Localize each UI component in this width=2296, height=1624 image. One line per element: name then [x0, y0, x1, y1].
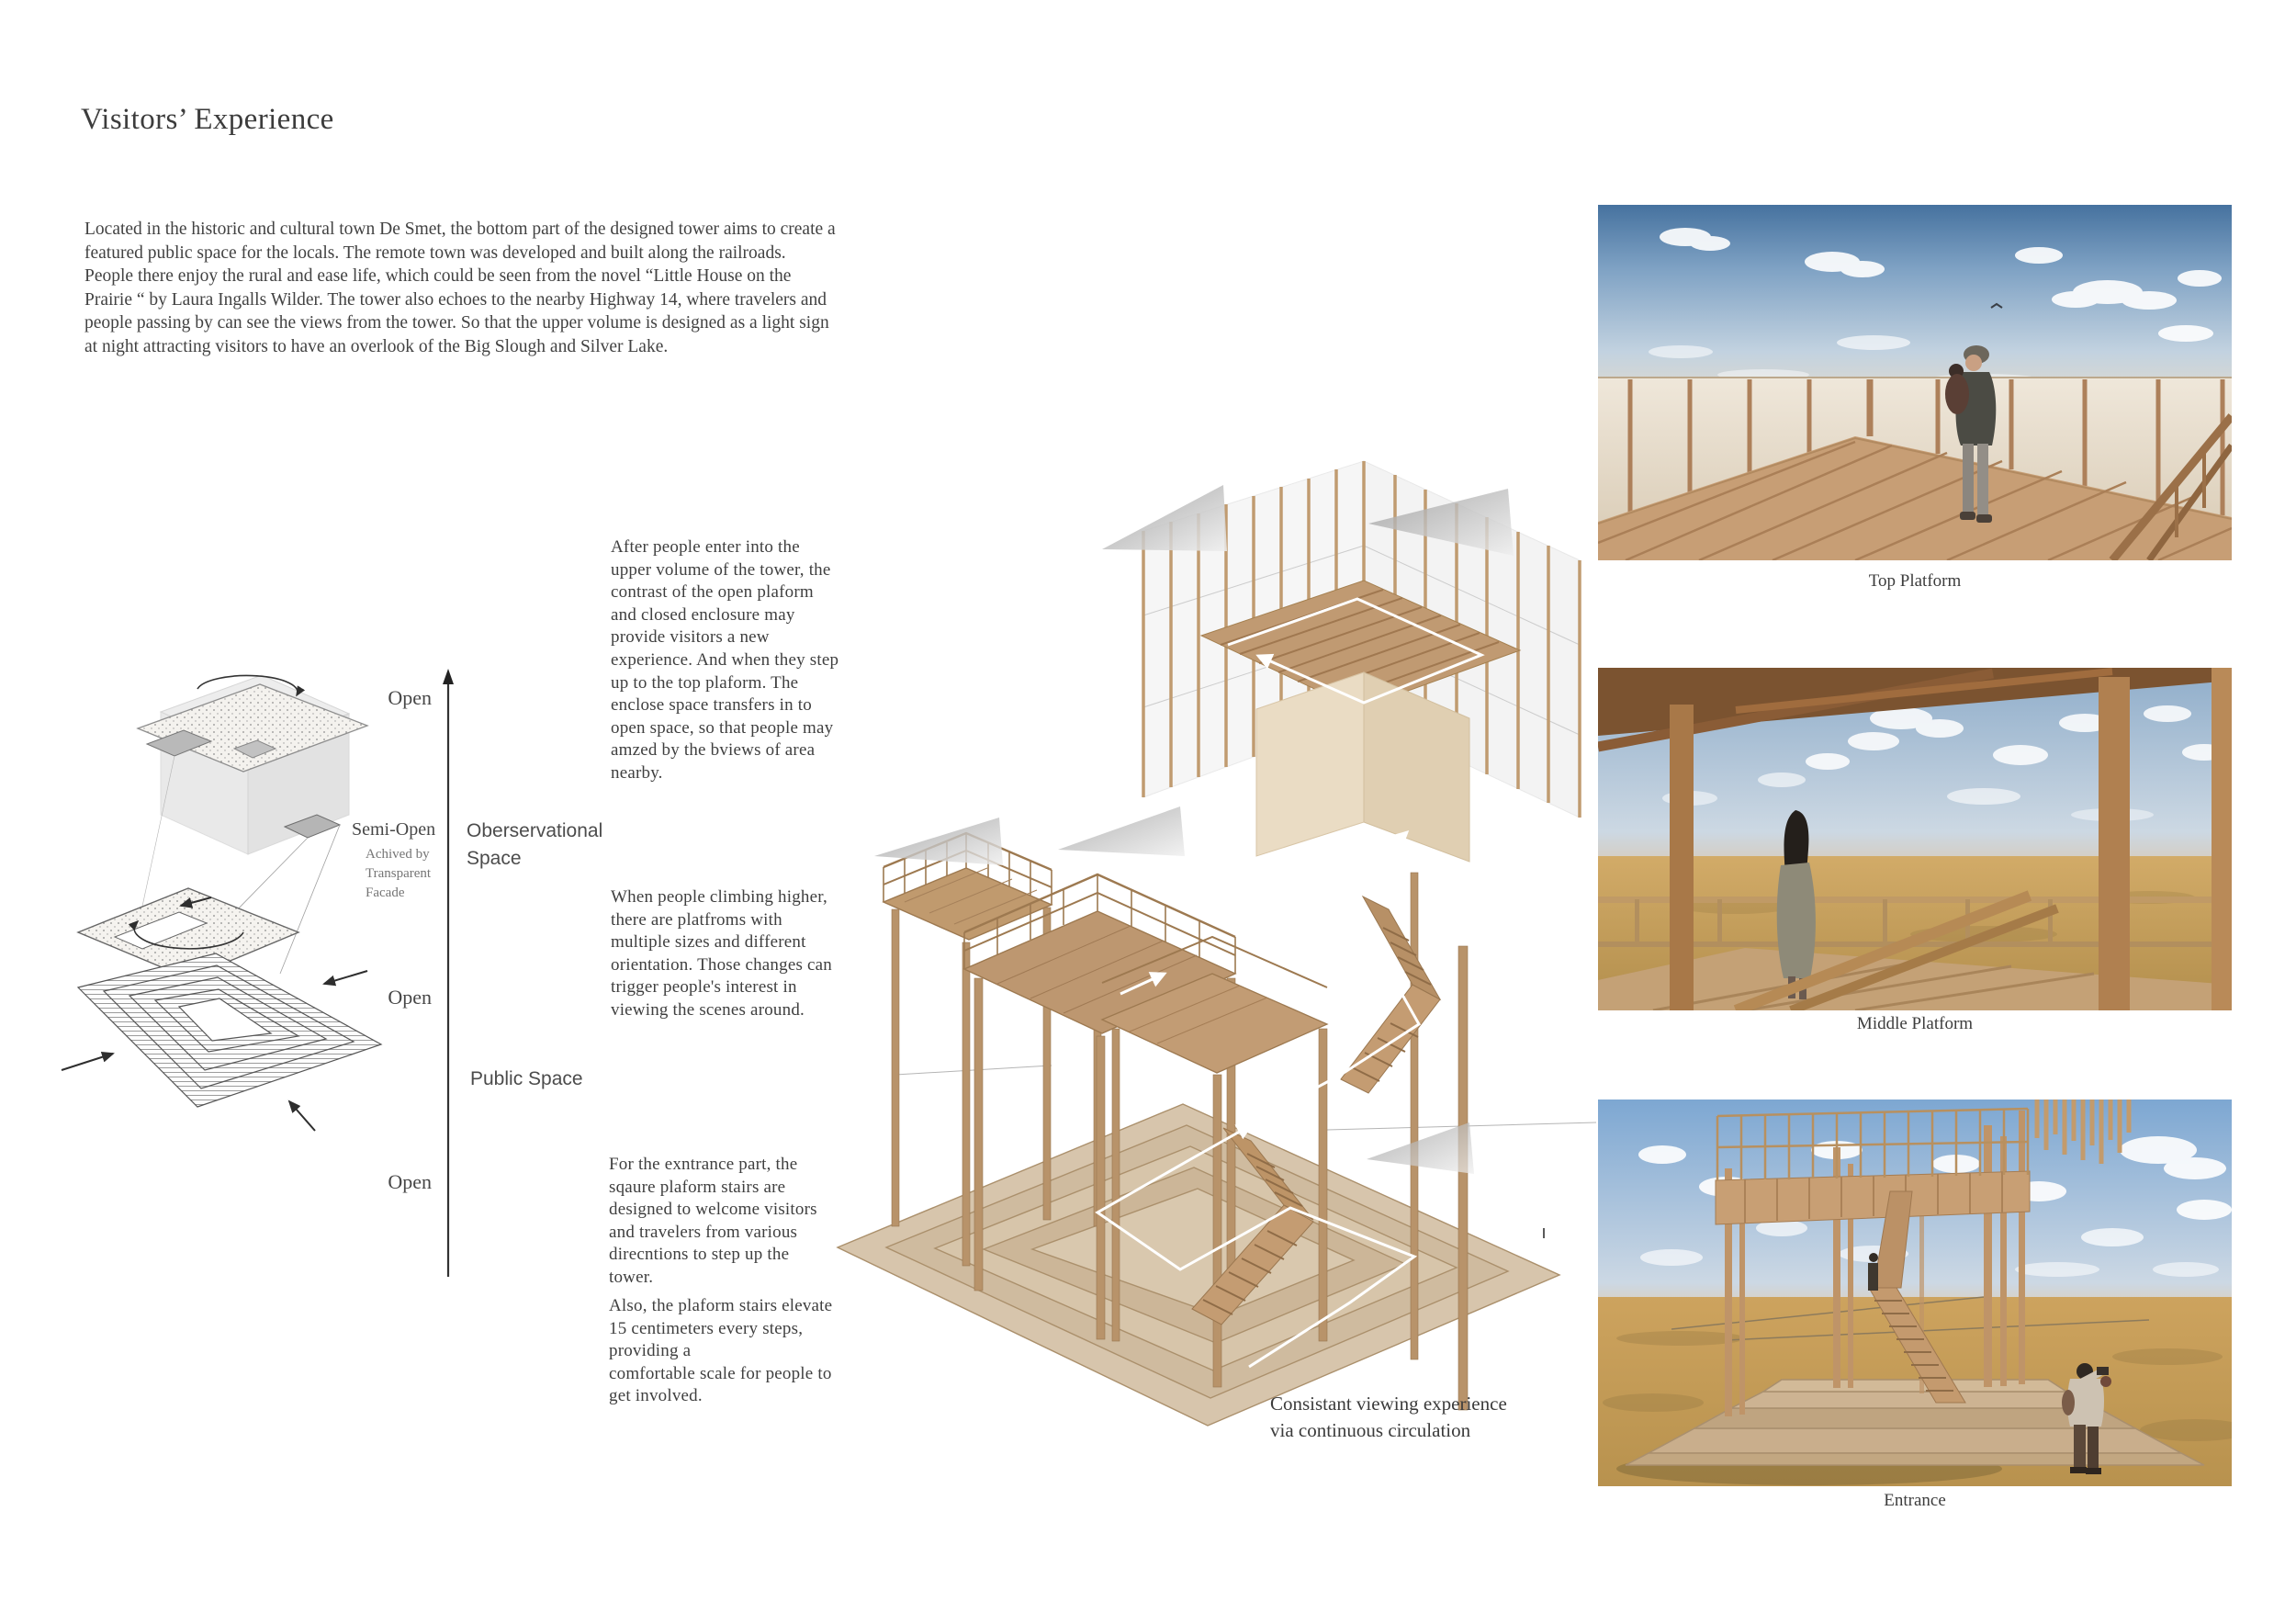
- top-platform-render: [1598, 205, 2232, 560]
- page-title: Visitors’ Experience: [81, 103, 334, 137]
- exploded-axon-diagram: [51, 657, 400, 1263]
- semi-open-note: Achived by Transparent Facade: [366, 845, 431, 903]
- photo-caption-entrance: Entrance: [1598, 1491, 2232, 1511]
- axon-caption: Consistant viewing experience via contin…: [1270, 1391, 1555, 1444]
- photo-caption-top-platform: Top Platform: [1598, 571, 2232, 592]
- zone-label-observational: Oberservational Space: [467, 818, 630, 873]
- intro-paragraph: Located in the historic and cultural tow…: [84, 218, 836, 358]
- openness-axis-arrow: [441, 669, 456, 1280]
- annotation-platforms: When people climbing higher, there are p…: [611, 886, 842, 1022]
- axis-label-open-mid: Open: [354, 986, 432, 1009]
- axis-label-open-bottom: Open: [354, 1170, 432, 1194]
- person-on-landing: [1868, 1253, 1878, 1291]
- zone-label-public: Public Space: [470, 1066, 672, 1093]
- stepped-base: [78, 953, 381, 1107]
- axis-label-semi-open: Semi-Open: [352, 819, 435, 840]
- axis-label-open-top: Open: [354, 686, 432, 710]
- middle-platform-render: [1598, 668, 2232, 1010]
- arrow-up-icon: [443, 669, 454, 684]
- photo-caption-middle-platform: Middle Platform: [1598, 1014, 2232, 1034]
- annotation-steps: Also, the plaform stairs elevate 15 cent…: [609, 1295, 840, 1408]
- annotation-entrance: For the exntrance part, the sqaure plafo…: [609, 1154, 833, 1290]
- photo-middle-platform: [1598, 668, 2232, 1010]
- tower-axonometric: [827, 432, 1598, 1433]
- annotation-upper-volume: After people enter into the upper volume…: [611, 536, 842, 785]
- presentation-board: Visitors’ Experience Located in the hist…: [0, 0, 2296, 1624]
- stray-mark: [1543, 1228, 1545, 1238]
- photo-entrance: [1598, 1100, 2232, 1486]
- photo-top-platform: [1598, 205, 2232, 560]
- entrance-render: [1598, 1100, 2232, 1486]
